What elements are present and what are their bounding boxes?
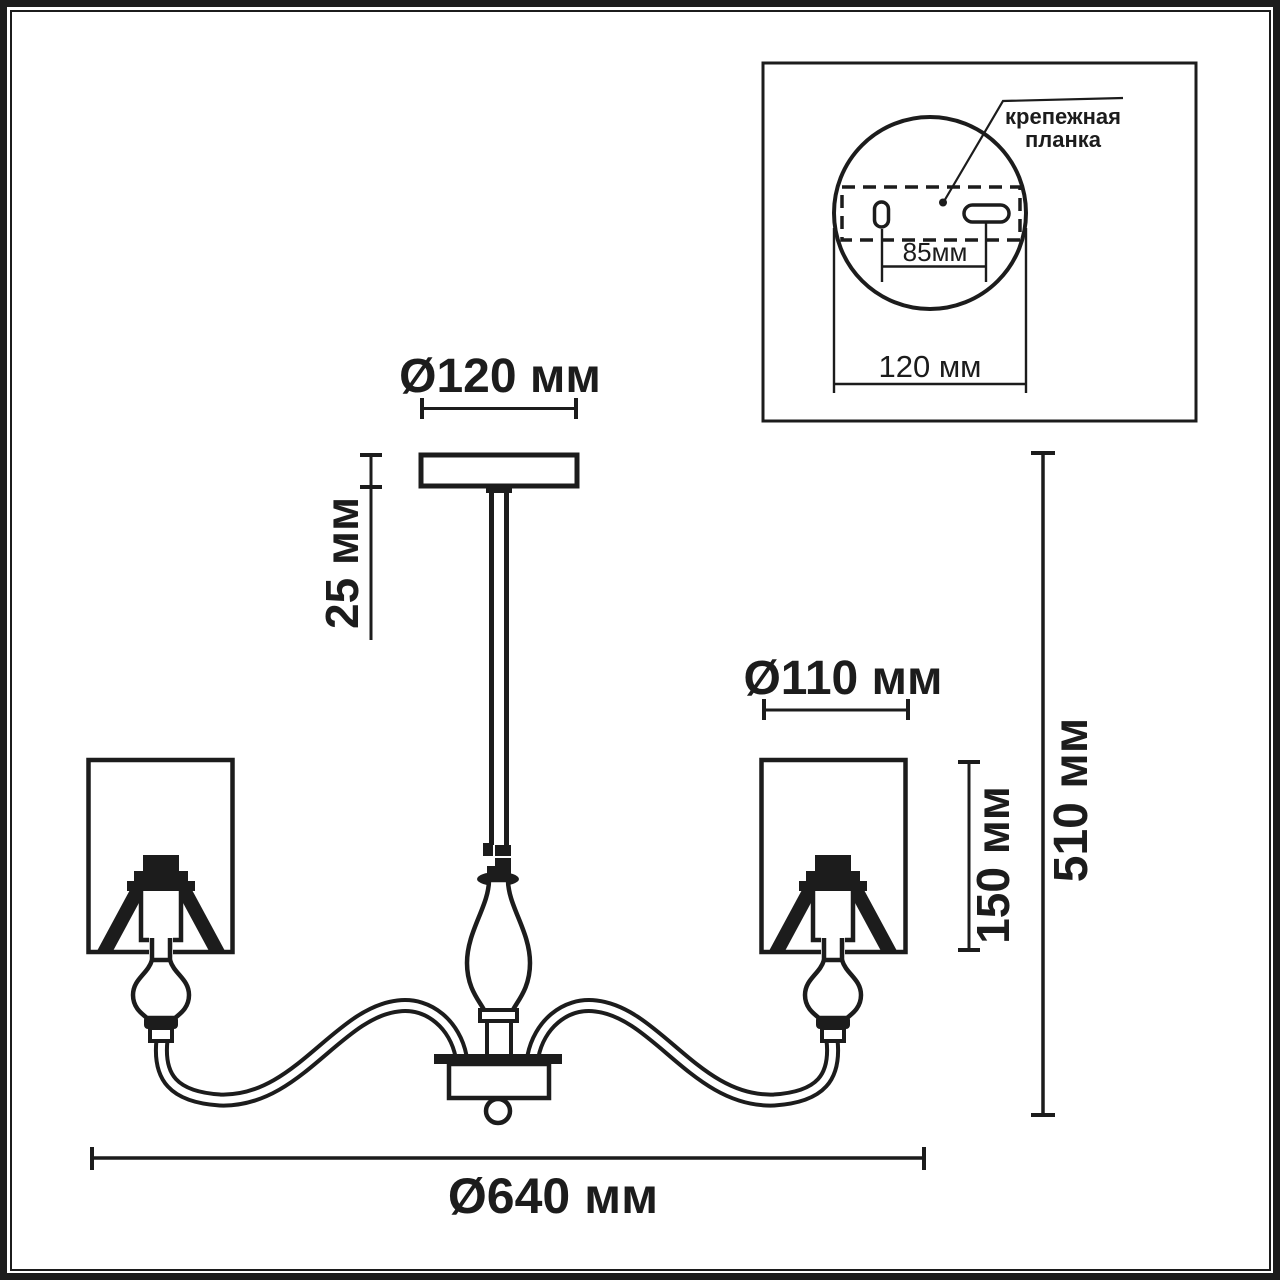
bottom-hub bbox=[434, 1054, 562, 1123]
hole-spacing-label: 85мм bbox=[903, 237, 968, 267]
central-stem bbox=[467, 880, 530, 1061]
ceiling-canopy bbox=[421, 455, 577, 493]
fixture-diameter-dimension: Ø640 мм bbox=[92, 1147, 924, 1224]
hole-spacing-dimension: 85мм bbox=[882, 223, 986, 282]
bracket-label-line1: крепежная bbox=[1005, 104, 1121, 129]
shade-diameter-dimension: Ø110 мм bbox=[743, 652, 942, 720]
right-lamp bbox=[533, 760, 906, 1100]
arm-outer bbox=[161, 1006, 461, 1101]
left-lamp bbox=[89, 760, 462, 1100]
suspension-rod bbox=[492, 490, 507, 845]
fixture-diameter-label: Ø640 мм bbox=[448, 1168, 658, 1224]
rod-lines bbox=[492, 490, 507, 845]
candle-ring bbox=[150, 1028, 172, 1041]
joint-hook-top bbox=[495, 845, 511, 856]
bracket-slot-large bbox=[964, 205, 1009, 222]
fixture-height-dimension: 510 мм bbox=[1031, 453, 1098, 1115]
bracket-label-line2: планка bbox=[1025, 127, 1102, 152]
joint-hook-bottom bbox=[495, 858, 511, 867]
canopy-diameter-dimension: Ø120 мм bbox=[399, 350, 601, 419]
socket-cylinder bbox=[141, 886, 181, 940]
canopy-height-dimension: 25 мм bbox=[316, 455, 382, 640]
technical-drawing-page: { "drawing": { "dimensions": { "canopy_d… bbox=[0, 0, 1280, 1280]
fixture-height-label: 510 мм bbox=[1045, 718, 1098, 882]
candle-bulge bbox=[133, 960, 189, 1018]
mounting-plate-inset: крепежная планка 85мм 120 мм bbox=[763, 63, 1196, 421]
joint-notch bbox=[483, 843, 493, 856]
socket-cap bbox=[143, 855, 179, 877]
mounting-bracket-dashed-outline bbox=[842, 187, 1020, 240]
shade-height-dimension: 150 мм bbox=[958, 762, 1019, 950]
hub-box bbox=[449, 1064, 549, 1098]
plate-diameter-label: 120 мм bbox=[879, 349, 982, 384]
chandelier-dimension-diagram: крепежная планка 85мм 120 мм Ø120 мм 25 … bbox=[0, 0, 1280, 1280]
shade-height-label: 150 мм bbox=[967, 786, 1019, 944]
canopy-plate-circle bbox=[834, 117, 1026, 309]
shade-diameter-label: Ø110 мм bbox=[743, 652, 942, 705]
canopy-body bbox=[421, 455, 577, 486]
bracket-hole-small bbox=[875, 202, 889, 227]
canopy-diameter-label: Ø120 мм bbox=[399, 350, 601, 403]
vase-body bbox=[467, 880, 530, 1014]
finial-ball bbox=[486, 1099, 510, 1123]
canopy-height-label: 25 мм bbox=[316, 497, 368, 629]
